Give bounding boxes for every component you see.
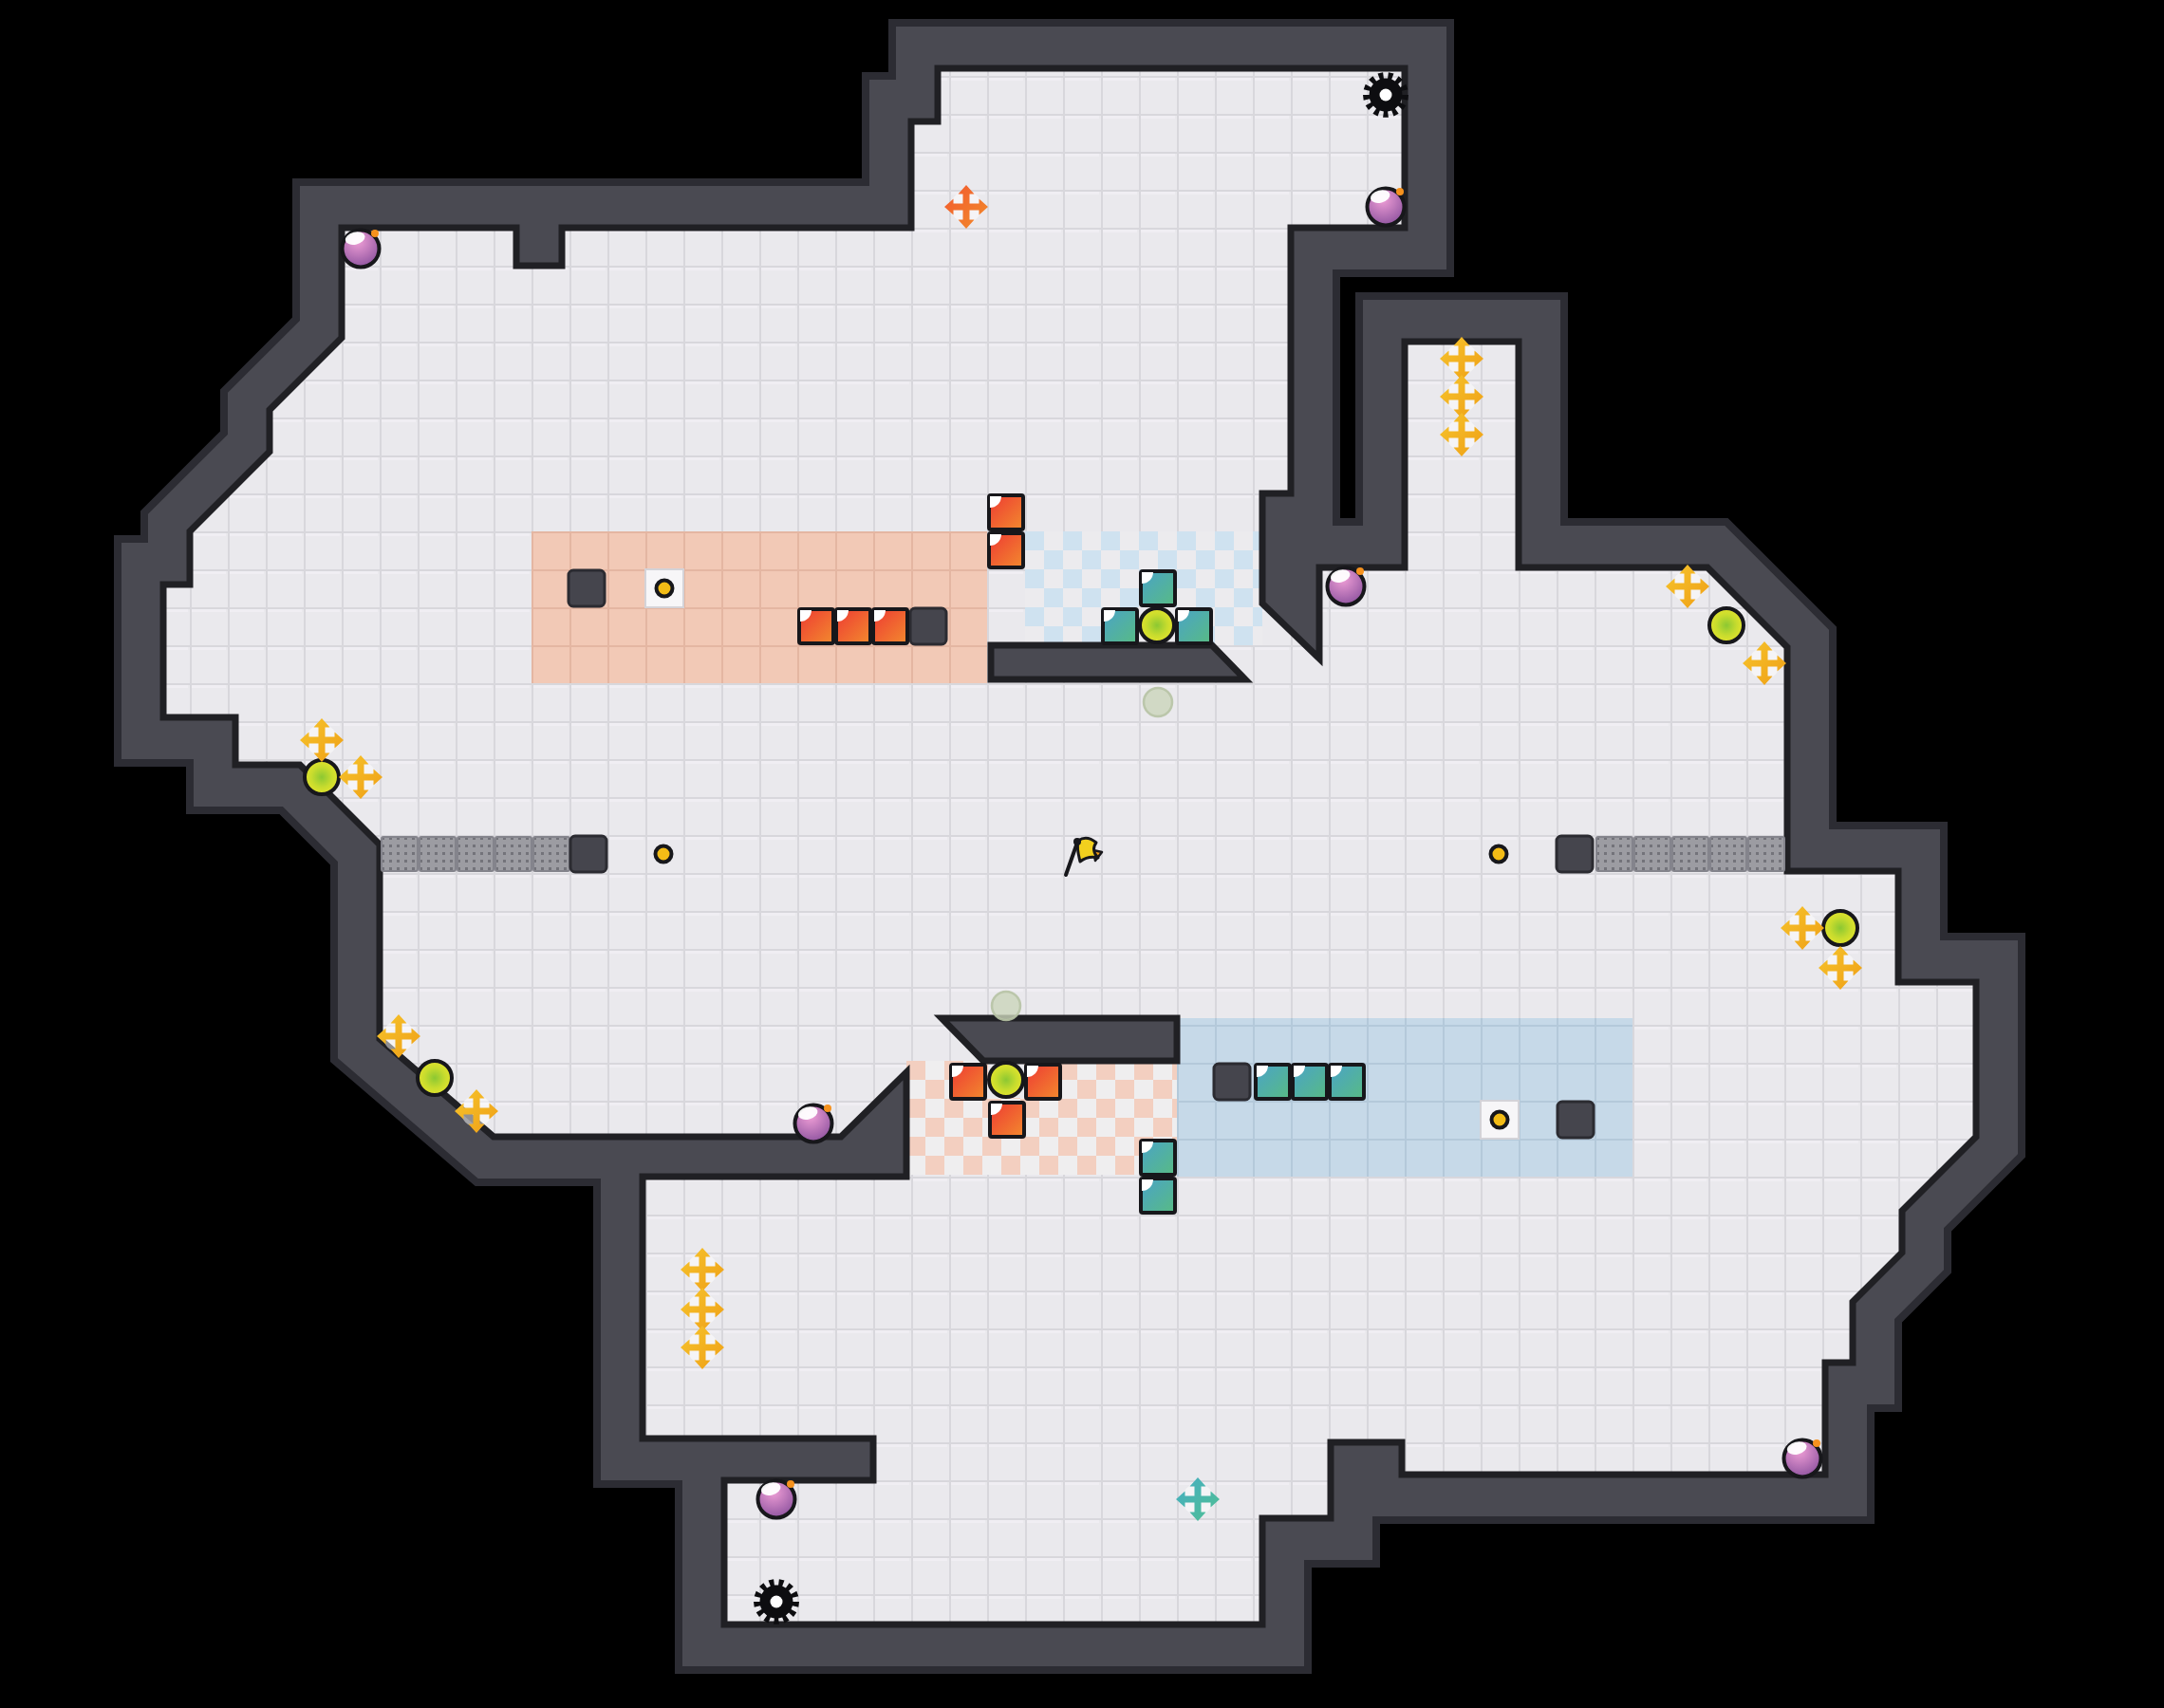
bomb[interactable]: [343, 230, 380, 268]
button-dot-icon: [657, 581, 673, 597]
coin-icon: [418, 1061, 452, 1095]
coin-pickup[interactable]: [989, 1063, 1023, 1097]
flag-knob: [1073, 838, 1081, 845]
obstacle-block[interactable]: [1558, 1102, 1594, 1138]
coin-pickup[interactable]: [1823, 911, 1857, 945]
red-spawn-block[interactable]: [873, 609, 907, 643]
pressure-plate-button[interactable]: [1481, 1101, 1519, 1139]
gate-grate-tile[interactable]: [1634, 837, 1670, 871]
gear-hub: [771, 1596, 783, 1608]
coin-pickup[interactable]: [305, 760, 339, 794]
obstacle-block[interactable]: [1557, 836, 1593, 872]
bomb[interactable]: [758, 1480, 795, 1518]
floor-button[interactable]: [1491, 846, 1507, 863]
bomb-fuse-icon: [787, 1480, 794, 1488]
obstacle-block[interactable]: [570, 836, 606, 872]
obstacle-block-face: [1214, 1064, 1250, 1100]
bomb-fuse-icon: [371, 230, 379, 237]
coin-pickup[interactable]: [418, 1061, 452, 1095]
coin-pickup[interactable]: [1709, 608, 1744, 642]
obstacle-block[interactable]: [569, 570, 605, 606]
obstacle-block-face: [1557, 836, 1593, 872]
red-spawn-block[interactable]: [989, 533, 1023, 567]
gate-grate-tile[interactable]: [495, 837, 532, 871]
obstacle-block-face: [1558, 1102, 1594, 1138]
gate-grate-tile[interactable]: [533, 837, 569, 871]
coin-icon: [305, 760, 339, 794]
floor-button[interactable]: [656, 846, 672, 863]
bomb[interactable]: [795, 1105, 832, 1142]
teal-spawn-block[interactable]: [1293, 1065, 1327, 1099]
teal-spawn-block[interactable]: [1103, 609, 1137, 643]
ghost-circle: [1144, 688, 1172, 716]
game-map-canvas[interactable]: [0, 0, 2164, 1708]
obstacle-block-face: [570, 836, 606, 872]
obstacle-block[interactable]: [1214, 1064, 1250, 1100]
red-spawn-block[interactable]: [951, 1065, 985, 1099]
coin-icon: [1140, 608, 1174, 642]
teal-spawn-block[interactable]: [1330, 1065, 1364, 1099]
bomb-fuse-icon: [1356, 567, 1364, 575]
game-viewport: [0, 0, 2164, 1708]
red-spawn-block[interactable]: [799, 609, 833, 643]
red-spawn-block[interactable]: [990, 1103, 1024, 1137]
gate-grate-tile[interactable]: [1596, 837, 1632, 871]
teal-spawn-block[interactable]: [1256, 1065, 1290, 1099]
red-spawn-block[interactable]: [1026, 1065, 1060, 1099]
red-spawn-block[interactable]: [836, 609, 870, 643]
teal-spawn-block[interactable]: [1141, 1179, 1175, 1213]
teal-spawn-block[interactable]: [1141, 571, 1175, 605]
gear-hub: [1380, 89, 1392, 102]
coin-icon: [1823, 911, 1857, 945]
bomb[interactable]: [1784, 1439, 1821, 1477]
teal-spawn-block[interactable]: [1177, 609, 1211, 643]
gate-grate-tile[interactable]: [1748, 837, 1784, 871]
ghost-circle-shape: [992, 992, 1020, 1020]
bomb-fuse-icon: [1813, 1439, 1820, 1447]
bomb[interactable]: [1368, 188, 1405, 226]
ghost-circle: [992, 992, 1020, 1020]
bomb-fuse-icon: [1396, 188, 1404, 195]
coin-icon: [1709, 608, 1744, 642]
teal-spawn-block[interactable]: [1141, 1141, 1175, 1175]
coin-icon: [989, 1063, 1023, 1097]
obstacle-block-face: [569, 570, 605, 606]
ghost-circle-shape: [1144, 688, 1172, 716]
button-dot-icon: [1492, 1112, 1508, 1128]
bomb[interactable]: [1328, 567, 1365, 605]
gate-grate-tile[interactable]: [420, 837, 456, 871]
bomb-fuse-icon: [824, 1105, 831, 1112]
gate-grate-tile[interactable]: [382, 837, 418, 871]
obstacle-block-face: [910, 608, 946, 644]
coin-pickup[interactable]: [1140, 608, 1174, 642]
button-dot-icon: [1491, 846, 1507, 863]
red-spawn-block[interactable]: [989, 495, 1023, 529]
gate-grate-tile[interactable]: [457, 837, 494, 871]
gate-grate-tile[interactable]: [1672, 837, 1708, 871]
obstacle-block[interactable]: [910, 608, 946, 644]
gate-grate-tile[interactable]: [1710, 837, 1746, 871]
button-dot-icon: [656, 846, 672, 863]
pressure-plate-button[interactable]: [645, 569, 683, 607]
